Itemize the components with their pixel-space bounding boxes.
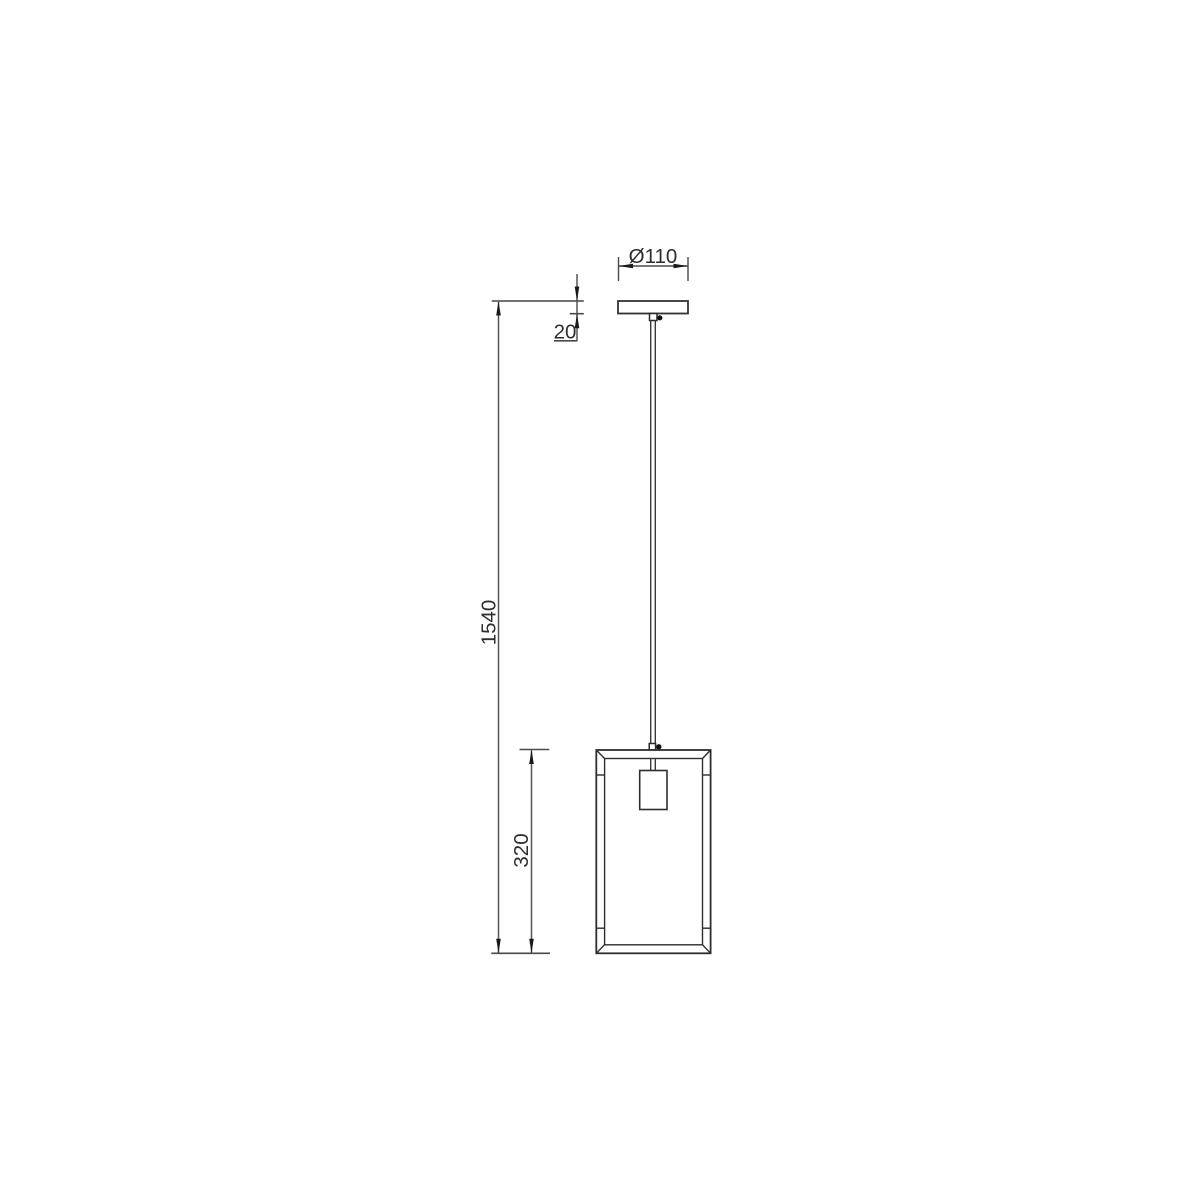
svg-text:Ø110: Ø110 xyxy=(629,245,678,268)
svg-text:1540: 1540 xyxy=(477,600,500,646)
svg-text:320: 320 xyxy=(510,833,533,867)
